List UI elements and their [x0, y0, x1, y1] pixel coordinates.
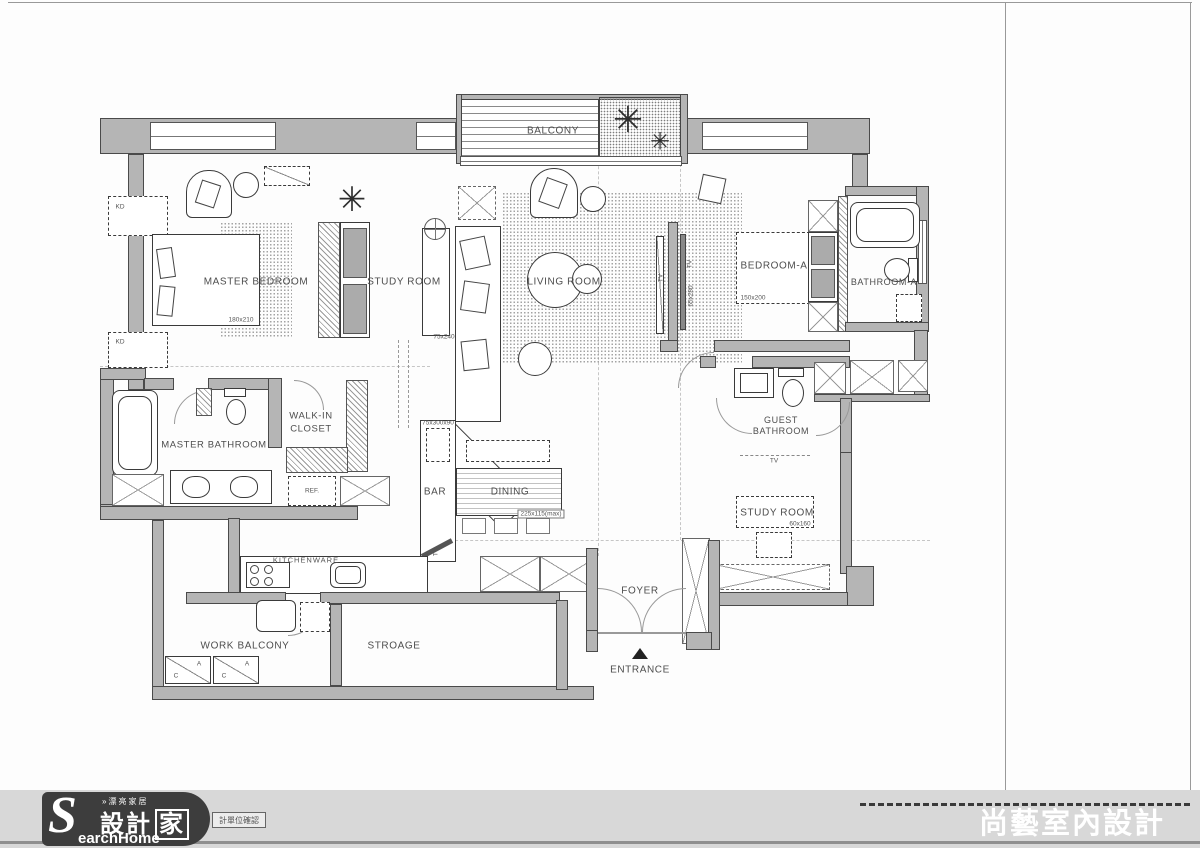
door-arc	[294, 380, 324, 410]
room-label-bar: BAR	[424, 487, 446, 498]
centerline	[430, 540, 930, 541]
threshold	[598, 632, 686, 634]
pillow	[461, 339, 490, 372]
room-label-guest-bath-2: BATHROOM	[753, 426, 809, 436]
sliding-partition	[398, 340, 399, 428]
dim-label: 75x240	[433, 334, 454, 341]
side-table	[580, 186, 606, 212]
searchhome-logo: S »漂亮家居 設計家 earchHome	[42, 792, 210, 846]
washer	[213, 656, 259, 684]
cabinet	[340, 476, 390, 506]
sink-basin	[230, 476, 258, 498]
pillow	[156, 285, 175, 317]
dim-label: 150x200	[741, 295, 766, 302]
dining-chair	[462, 518, 486, 534]
side-table	[233, 172, 259, 198]
sliding-partition	[408, 340, 409, 428]
stool	[518, 342, 552, 376]
tv-panel	[680, 234, 686, 330]
room-label-bedroom-a: BEDROOM-A	[740, 261, 807, 272]
wall	[228, 518, 240, 598]
wall	[556, 600, 568, 690]
wall	[100, 368, 146, 380]
bathtub-inner	[856, 208, 914, 242]
room-label-bathroom-a: BATHROOM-A	[851, 277, 917, 287]
cabinet-label: KD	[115, 204, 124, 211]
wall	[846, 566, 874, 606]
balcony-rail	[680, 94, 688, 164]
closet	[808, 200, 838, 232]
dim-label: 65x280	[688, 285, 695, 306]
plant-icon	[613, 99, 643, 141]
wall	[700, 356, 716, 368]
ceiling-symbol	[424, 218, 446, 240]
wall	[330, 604, 342, 686]
room-label-walkin: WALK-IN	[289, 411, 332, 422]
wall	[668, 222, 678, 344]
bathtub-inner	[118, 396, 152, 470]
room-label-living: LIVING ROOM	[527, 277, 600, 288]
window	[150, 122, 276, 150]
dim-label: 180x210	[229, 317, 254, 324]
dim-label: 225x115(max)	[517, 510, 564, 519]
wardrobe-door	[343, 228, 367, 278]
wall	[840, 452, 852, 574]
laundry-sink	[256, 600, 296, 632]
tv-label: TV	[433, 548, 440, 556]
washer-label: A	[245, 661, 249, 668]
tv-cabinet	[656, 236, 664, 334]
toilet-bowl	[226, 399, 246, 425]
door-arc	[716, 398, 752, 434]
wall	[320, 592, 560, 604]
cabinet-label: KD	[115, 339, 124, 346]
pillow	[460, 280, 490, 313]
wall-hatch	[838, 196, 848, 332]
toilet-bowl	[782, 379, 804, 407]
closet	[898, 360, 928, 392]
nightstand	[108, 196, 168, 236]
wall	[686, 632, 712, 650]
logo-s-glyph: S	[48, 786, 77, 845]
stamp-box: 計單位確認	[212, 812, 266, 828]
washer-label: C	[174, 673, 179, 680]
sink-basin	[182, 476, 210, 498]
wall	[152, 686, 594, 700]
closet	[808, 302, 838, 332]
dim-label: 75x300x90	[422, 420, 454, 427]
drawing-sheet: BALCONY KD KD MASTER BEDROOM 180x210 STU…	[0, 0, 1200, 848]
room-label-stroage: STROAGE	[367, 641, 420, 652]
wardrobe-door	[811, 236, 835, 265]
title-block: SHANG YIH 尚藝室內設計有限公司 INTERIOR DESIGN CO.…	[1005, 0, 1191, 790]
washer-label: A	[197, 661, 201, 668]
room-label-guest-bath: GUEST	[764, 415, 798, 425]
wardrobe-door	[811, 269, 835, 298]
shelf	[112, 474, 164, 506]
guest-sink-basin	[740, 373, 768, 393]
vanity	[896, 294, 922, 322]
toilet-tank	[224, 388, 246, 397]
laundry-unit	[300, 602, 330, 632]
closet	[814, 362, 846, 394]
logo-name-en: earchHome	[78, 830, 160, 847]
toilet-tank	[778, 368, 804, 377]
wardrobe	[318, 222, 340, 338]
dining-chair	[526, 518, 550, 534]
study2-chair	[756, 532, 792, 558]
wall	[144, 378, 174, 390]
dining-chair	[494, 518, 518, 534]
shoe-bench	[480, 556, 540, 592]
washer-label: C	[222, 673, 227, 680]
room-label-entrance: ENTRANCE	[610, 665, 670, 676]
wall	[586, 630, 598, 652]
window	[702, 122, 808, 150]
wall	[268, 378, 282, 448]
room-label-study2: STUDY ROOM	[740, 508, 814, 519]
wall	[586, 548, 598, 634]
tv-label: TV	[658, 274, 665, 282]
room-label-walkin-2: CLOSET	[290, 424, 332, 435]
room-label-study: STUDY ROOM	[367, 277, 441, 288]
logo-zh-boxed: 家	[155, 809, 189, 840]
foyer-cabinet	[682, 538, 710, 644]
room-label-balcony: BALCONY	[527, 126, 579, 137]
closet-hatch	[286, 447, 348, 473]
watermark-text: 尚藝室內設計	[958, 800, 1186, 842]
room-label-dining: DINING	[491, 487, 530, 498]
wall	[700, 592, 848, 606]
plant-icon	[338, 180, 367, 220]
wall	[852, 154, 868, 190]
bar-stool	[426, 428, 450, 462]
room-label-foyer: FOYER	[621, 586, 658, 597]
ref-label: REF.	[305, 488, 319, 495]
sliding-door	[460, 156, 682, 166]
entrance-arrow-icon	[632, 648, 648, 659]
wall	[152, 520, 164, 698]
room-label-kitchenware: KITCHENWARE	[273, 556, 339, 565]
plant-icon	[650, 128, 670, 157]
dining-cabinet	[466, 440, 550, 462]
wall	[714, 340, 850, 352]
cabinet	[716, 564, 830, 590]
room-label-master-bedroom: MASTER BEDROOM	[204, 277, 309, 288]
shower-column	[196, 388, 212, 416]
floor-plan: BALCONY KD KD MASTER BEDROOM 180x210 STU…	[0, 0, 1005, 790]
room-label-work-balcony: WORK BALCONY	[201, 641, 290, 652]
closet-hatch	[346, 380, 368, 472]
kitchen-sink-basin	[335, 566, 361, 584]
room-label-master-bath: MASTER BATHROOM	[161, 440, 266, 451]
dim-label: 60x160	[789, 521, 810, 528]
closet	[850, 360, 894, 394]
tv-label: TV	[687, 260, 694, 268]
wall	[814, 394, 930, 402]
wall	[660, 340, 678, 352]
tv-line	[740, 455, 810, 456]
nightstand	[108, 332, 168, 368]
tv-label: TV	[770, 458, 778, 465]
tv-board	[264, 166, 310, 186]
window	[416, 122, 456, 150]
wardrobe-door	[343, 284, 367, 334]
washer	[165, 656, 211, 684]
cabinet	[458, 186, 496, 220]
